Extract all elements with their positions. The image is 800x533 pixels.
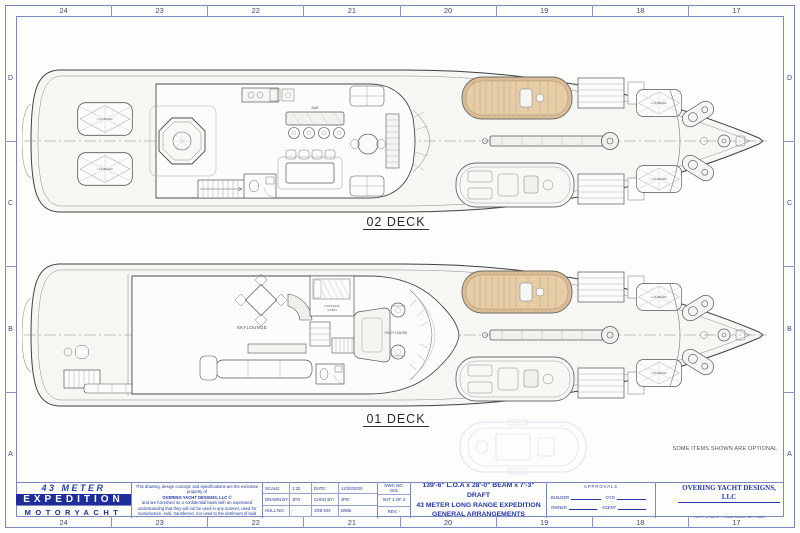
stairs-02 <box>198 180 246 198</box>
pilot-house-label: PILOT HOUSE <box>385 331 408 335</box>
grid-col: 20 <box>400 517 496 528</box>
job-no-value: D985 <box>339 506 377 517</box>
grid-band-right: D C B A <box>784 16 795 517</box>
grill-station <box>242 88 294 102</box>
firm-address: 10017 La Cata St. • Ocean Springs, MS • … <box>693 516 765 518</box>
grid-band-left: D C B A <box>5 16 16 517</box>
grid-col: 21 <box>303 5 399 16</box>
grid-col: 24 <box>16 5 111 16</box>
builder-label: BUILDER <box>551 495 569 500</box>
deck-02-title: 02 DECK <box>22 213 770 231</box>
disclaimer: This drawing, design concept, and specif… <box>131 483 262 518</box>
drawing-title-line2: 43 METER LONG RANGE EXPEDITION <box>416 501 540 511</box>
oyd-signature-line <box>617 493 646 500</box>
grid-col: 23 <box>111 5 207 16</box>
grid-col: 22 <box>207 5 303 16</box>
approvals: APPROVALS BUILDER OYD OWNER AGENT <box>546 483 655 518</box>
drawing-fields: SCALE: 1:32 DATE: 12/30/2020 DRAWN BY: J… <box>262 483 377 518</box>
job-no-label: JOB NO: <box>312 506 339 517</box>
grid-band-top: 24 23 22 21 20 19 18 17 <box>16 5 784 16</box>
grid-col: 20 <box>400 5 496 16</box>
day-head-01 <box>316 364 344 384</box>
grid-band-bottom: 24 23 22 21 20 19 18 17 <box>16 517 784 528</box>
dwg-number-cell: DWG NO: G01 SHT 2 OF 2 REV: - <box>377 483 410 518</box>
date-value: 12/30/2020 <box>339 483 377 494</box>
grid-row: B <box>784 266 795 392</box>
grid-col: 17 <box>688 5 784 16</box>
grid-row: C <box>784 141 795 267</box>
drawn-by-value: JPO <box>290 494 312 505</box>
optional-items-note: SOME ITEMS SHOWN ARE OPTIONAL <box>640 446 800 452</box>
grid-col: 23 <box>111 517 207 528</box>
logo-expedition: EXPEDITION <box>16 494 131 506</box>
grid-col: 18 <box>592 5 688 16</box>
rev-value: - <box>399 509 400 514</box>
drawn-by-label: DRAWN BY: <box>263 494 290 505</box>
drawing-title-line1: 139'-6" L.O.A x 28'-0" BEAM x 7'-3" DRAF… <box>411 483 546 501</box>
dwg-no-value: G01 <box>390 489 398 494</box>
rev-label: REV: <box>388 509 398 514</box>
agent-signature-line <box>618 503 646 510</box>
firm-name: OVERING YACHT DESIGNS, LLC <box>678 484 780 503</box>
deck-01-title-text: 01 DECK <box>363 412 428 427</box>
pilothouse-console <box>354 308 390 362</box>
hull-no-label: HULL NO: <box>263 506 290 517</box>
grid-row: A <box>5 392 16 518</box>
chkd-by-label: CHKD BY: <box>312 494 339 505</box>
date-label: DATE: <box>312 483 339 494</box>
lounger-label: LOUNGER <box>97 117 113 121</box>
grid-col: 17 <box>688 517 784 528</box>
skylounge-label: SKYLOUNGE <box>237 325 267 330</box>
day-head-02 <box>244 174 276 198</box>
approvals-header: APPROVALS <box>551 484 651 489</box>
drawing-title: 139'-6" L.O.A x 28'-0" BEAM x 7'-3" DRAF… <box>410 483 546 518</box>
disclaimer-line1: This drawing, design concept, and specif… <box>136 484 258 494</box>
owner-signature-line <box>569 503 597 510</box>
firm-block: OVERING YACHT DESIGNS, LLC 10017 La Cata… <box>655 483 784 518</box>
helm-chair-starboard <box>391 345 405 359</box>
grid-row: D <box>5 16 16 141</box>
grid-col: 21 <box>303 517 399 528</box>
disclaimer-body: and are furnished on a confidential basi… <box>136 500 258 518</box>
grid-row: D <box>784 16 795 141</box>
logo-motoryacht: MOTORYACHT <box>16 505 131 518</box>
helm-chair-port <box>391 303 405 317</box>
owner-label: OWNER <box>551 505 567 510</box>
grid-col: 18 <box>592 517 688 528</box>
deck-01-plan: SKYLOUNGE CAPTAINS CABIN <box>22 256 770 414</box>
builder-signature-line <box>571 493 600 500</box>
sheet-number: SHT 2 OF 2 <box>383 498 406 503</box>
scale-value: 1:32 <box>290 483 312 494</box>
scale-label: SCALE: <box>263 483 290 494</box>
disclaimer-line2: OVERING YACHT DESIGNS, LLC © <box>162 495 231 500</box>
grid-col: 19 <box>496 5 592 16</box>
drawing-sheet: LOUNGER LOUNGER <box>0 0 800 533</box>
grid-row: C <box>5 141 16 267</box>
deck-02-plan: LOUNGER LOUNGER BAR <box>22 62 770 220</box>
grid-row: B <box>5 266 16 392</box>
captains-cabin-label: CABIN <box>327 308 336 312</box>
grid-col: 19 <box>496 517 592 528</box>
grid-col: 24 <box>16 517 111 528</box>
deck-02-title-text: 02 DECK <box>363 215 428 230</box>
oyd-label: OYD <box>606 495 615 500</box>
grid-col: 22 <box>207 517 303 528</box>
captains-cabin: CAPTAINS CABIN <box>310 276 354 316</box>
chkd-by-value: JPO <box>339 494 377 505</box>
logo-43-meter: 43 METER <box>16 483 131 494</box>
hull-no-value: - <box>290 506 312 517</box>
title-block-logo: 43 METER EXPEDITION MOTORYACHT <box>16 483 131 518</box>
drawing-title-line3: GENERAL ARRANGEMENTS <box>432 510 525 518</box>
media-cabinet <box>248 344 306 353</box>
title-block: 43 METER EXPEDITION MOTORYACHT This draw… <box>16 482 784 518</box>
deck-01-title: 01 DECK <box>22 410 770 428</box>
grid-row: A <box>784 392 795 518</box>
lounger-label: LOUNGER <box>97 167 113 171</box>
bar-label: BAR <box>312 106 320 110</box>
optional-tender-sketch <box>448 414 598 486</box>
bar-counter <box>286 112 344 125</box>
agent-label: AGENT <box>602 505 616 510</box>
